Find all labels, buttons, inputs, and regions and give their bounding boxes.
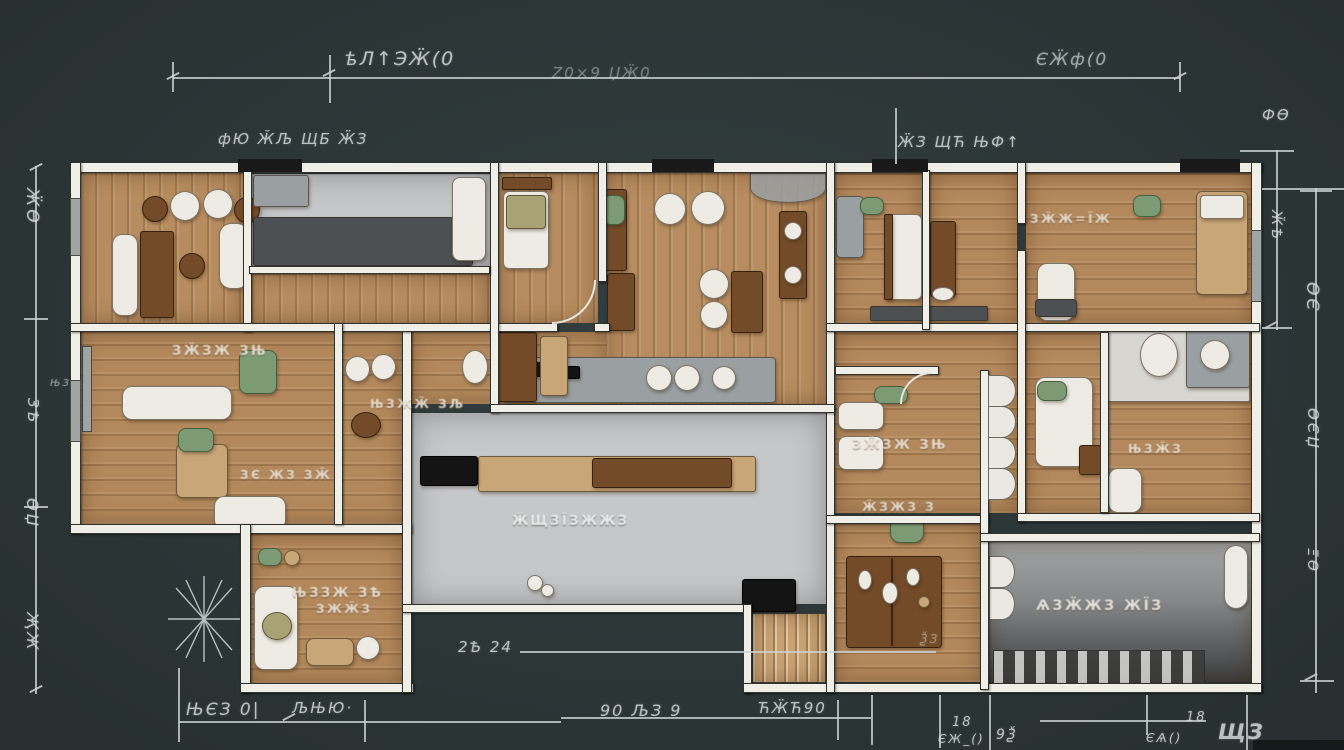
room-label: ЊЗӜЗ xyxy=(1128,442,1183,456)
dim-label: ӁѢ xyxy=(1268,210,1284,242)
wall-corridor-bottom xyxy=(402,604,752,613)
closet-door-leaf xyxy=(988,375,1016,407)
closet-door-leaf xyxy=(988,437,1016,469)
room-label: ЗЄ ЖЗ ЗӜ xyxy=(240,468,332,482)
cabinet xyxy=(607,273,635,331)
bowl xyxy=(882,582,898,604)
wall-v9 xyxy=(334,323,343,525)
loveseat-tan xyxy=(176,444,228,498)
wall-h-upper-left xyxy=(70,323,558,332)
door-leaf xyxy=(989,556,1015,588)
dining-chair xyxy=(700,301,728,329)
decor-bowl xyxy=(784,266,802,284)
dim-drop xyxy=(1146,695,1148,735)
dim-label: ѮЗ xyxy=(920,632,939,646)
dim-line-bottom-1 xyxy=(179,721,561,723)
loveseat-tan xyxy=(306,638,354,666)
plant xyxy=(1037,381,1067,401)
armchair xyxy=(838,402,884,430)
door-panel xyxy=(1224,545,1248,609)
dim-tick xyxy=(329,55,331,103)
window-marker xyxy=(652,159,714,172)
bowl xyxy=(918,596,930,608)
dim-drop xyxy=(1246,695,1248,750)
table-dark-wood xyxy=(140,231,174,318)
side-table xyxy=(356,636,380,660)
wall-v5a xyxy=(1017,162,1026,224)
appliance-column xyxy=(452,177,486,261)
floor-corridor-tile xyxy=(411,413,826,604)
decor-bowl xyxy=(784,222,802,240)
wall-bath xyxy=(1100,332,1109,513)
dim-drop xyxy=(989,695,991,750)
dim-label: ЋӜЋ90 xyxy=(758,699,827,717)
room-label: ӜЩЗЇЗЖЖЗ xyxy=(512,514,630,529)
wall-right-suite-bottom xyxy=(1017,513,1260,522)
window-glass xyxy=(70,198,81,256)
wardrobe xyxy=(493,332,537,402)
dim-label: ѲЄ xyxy=(1302,282,1322,313)
armchair xyxy=(345,356,370,382)
room-label: ЗӜЗЖ ЗЊ xyxy=(172,344,268,359)
wall-tr-split xyxy=(922,170,930,330)
armchair xyxy=(371,354,396,380)
dim-label: ӜѲ xyxy=(22,188,42,226)
window-marker xyxy=(872,159,928,172)
dim-tick xyxy=(178,668,180,742)
dim-tick xyxy=(24,318,48,320)
chair-wood xyxy=(351,412,381,438)
dim-label: ΞѲ xyxy=(1304,548,1320,574)
dim-label: Z0×9 ЏӜ0 xyxy=(552,64,652,82)
room-label: ЗӜЗЖ ЗЊ xyxy=(852,438,948,453)
plant xyxy=(860,197,884,215)
dim-label: 18 xyxy=(1186,710,1207,725)
dim-drop xyxy=(871,695,873,745)
dim-label: 9Ѯ xyxy=(996,727,1018,743)
pillows xyxy=(1200,195,1244,219)
dim-label: ЉЊЮ· xyxy=(292,699,353,717)
wall-hall-south xyxy=(490,404,835,413)
desk-chair xyxy=(646,365,672,391)
dim-label: 18 xyxy=(952,715,973,730)
plant xyxy=(178,428,214,452)
room-label: ЗЖӜЗ xyxy=(316,602,372,616)
window-glass xyxy=(70,380,81,442)
bathtub xyxy=(1108,468,1142,513)
appliance-black xyxy=(420,456,478,486)
desk-chair xyxy=(712,366,736,390)
wall-bottomleft xyxy=(240,683,414,693)
floor-balcony-deck xyxy=(752,613,826,683)
bed-frame xyxy=(884,214,893,300)
window-glass xyxy=(1251,230,1262,302)
chair-round xyxy=(142,196,168,222)
corner-dark-strip xyxy=(1253,740,1344,750)
room-label: ЊЗЖӜ ЗЉ xyxy=(370,397,466,411)
bowl xyxy=(858,570,872,590)
headboard xyxy=(502,177,552,190)
shelf xyxy=(253,175,309,207)
bowl xyxy=(906,568,920,586)
bed-blanket xyxy=(506,195,546,229)
sofa xyxy=(122,386,232,420)
wall-v3 xyxy=(598,162,607,282)
chair-round xyxy=(654,193,686,225)
dim-label: ҖЖ xyxy=(23,612,42,652)
dim-tick xyxy=(1300,190,1332,192)
dim-connector xyxy=(1040,720,1206,722)
wall-entry-top xyxy=(980,533,1260,542)
dim-label: ѲЏ xyxy=(23,498,42,529)
room-label: ѦЗӜЖЗ ЖЇЗ xyxy=(1036,598,1164,614)
plant xyxy=(1133,195,1161,217)
window-glass xyxy=(82,346,92,432)
dim-label: ЄӜф(0 xyxy=(1036,50,1108,70)
nightstand xyxy=(1079,445,1101,475)
vase xyxy=(541,584,554,597)
wall-main-divider xyxy=(826,162,835,693)
armchair xyxy=(462,350,488,384)
dim-line-top xyxy=(173,77,1180,79)
kitchen-counter xyxy=(253,217,473,266)
wall-vert-center-left xyxy=(402,323,412,693)
floor-strip xyxy=(249,274,490,323)
toilet xyxy=(1140,333,1178,377)
dim-label: фЮ ӁЉ ЩБ ӜЗ xyxy=(218,130,368,148)
ottoman xyxy=(1035,299,1077,317)
dining-table xyxy=(731,271,763,333)
wall-h-stub xyxy=(594,323,610,332)
side-table xyxy=(179,253,205,279)
dim-tick xyxy=(837,700,839,740)
sofa xyxy=(112,234,138,316)
cabinet-dark xyxy=(592,458,732,488)
room-label: ЊЗЗЖ ЗѢ xyxy=(292,586,383,601)
starburst-plant-decor xyxy=(164,574,244,664)
dim-label: ФѲ xyxy=(1262,106,1291,124)
dim-label: ЗѢ xyxy=(24,398,42,425)
plant xyxy=(258,548,282,566)
wall-balcony-left xyxy=(743,604,752,693)
dim-label: ЊЄЗ 0| xyxy=(186,700,260,720)
door-leaf xyxy=(989,588,1015,620)
dim-label: ѲЄЏ xyxy=(1304,408,1322,451)
chair-round xyxy=(203,189,233,219)
rug-arc xyxy=(750,173,826,203)
dim-label: ӜЗ ЩЋ ЊФ↑ xyxy=(898,133,1021,151)
room-label: ӜЗЖЗ З xyxy=(862,500,936,514)
wall-outer-bottom-right xyxy=(743,683,1262,693)
ottoman-olive xyxy=(262,612,292,640)
dim-label: 90 ЉЗ 9 xyxy=(600,701,682,720)
wall-v2 xyxy=(490,162,499,413)
dim-label: ЊЗ xyxy=(50,378,71,389)
desk-chair xyxy=(674,365,700,391)
closet-door-leaf xyxy=(988,468,1016,500)
window-marker xyxy=(1180,159,1240,172)
dim-tick xyxy=(1240,150,1294,152)
chair-round xyxy=(170,191,200,221)
cabinet-tan xyxy=(540,336,568,396)
stairs xyxy=(993,650,1205,684)
window-marker xyxy=(238,159,302,172)
chair-round xyxy=(691,191,725,225)
wardrobe xyxy=(930,221,956,297)
dim-label: 2Ѣ 24 xyxy=(458,638,513,656)
dining-chair xyxy=(699,269,729,299)
dim-tick xyxy=(895,108,897,164)
dim-label: ѣЛ↑ЭӜ(0 xyxy=(345,48,455,70)
sink xyxy=(1200,340,1230,370)
wall-utility-bottom xyxy=(249,266,490,274)
dim-label: ЄЖ_() xyxy=(938,732,985,746)
decor xyxy=(284,550,300,566)
dim-line-mid xyxy=(520,651,936,653)
dim-tick xyxy=(364,700,366,742)
dim-label: ЄѦ() xyxy=(1146,731,1182,745)
wall-right-h xyxy=(826,323,1260,332)
floor-plan-blueprint: ЗӜЗЖ ЗЊ ЊЗЖӜ ЗЉ ЗЄ ЖЗ ЗӜ ЊЗЗЖ ЗѢ ЗЖӜЗ ӜЩ… xyxy=(0,0,1344,750)
wall-center-bottom xyxy=(826,515,988,524)
closet-door-leaf xyxy=(988,406,1016,438)
stool xyxy=(932,287,954,301)
wall-v5b xyxy=(1017,250,1026,522)
wall-tl-divider xyxy=(243,162,252,332)
room-label: ЗӜЖ=ЇЖ xyxy=(1030,212,1112,226)
